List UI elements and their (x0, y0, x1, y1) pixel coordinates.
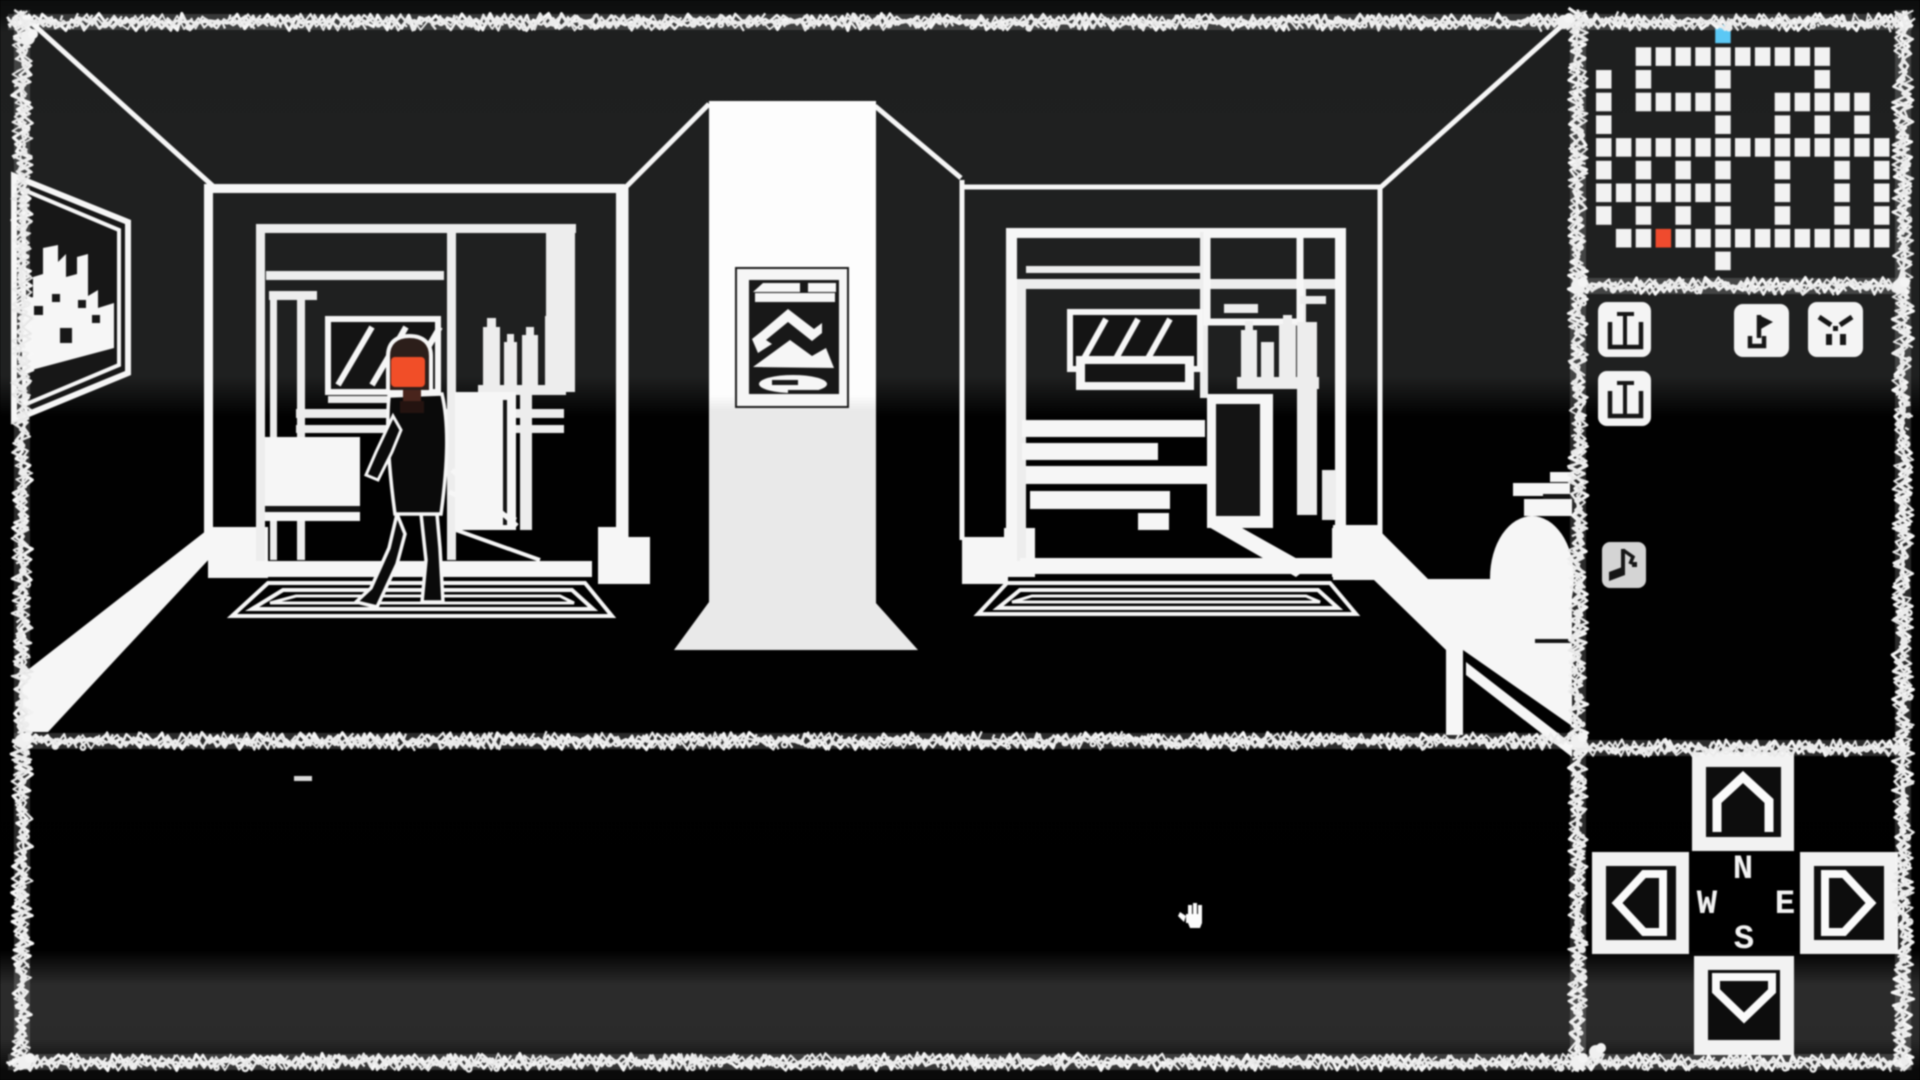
svg-text:E: E (1775, 886, 1795, 924)
svg-text:S: S (1734, 921, 1754, 959)
svg-text:N: N (1733, 851, 1753, 889)
svg-text:W: W (1697, 886, 1718, 924)
